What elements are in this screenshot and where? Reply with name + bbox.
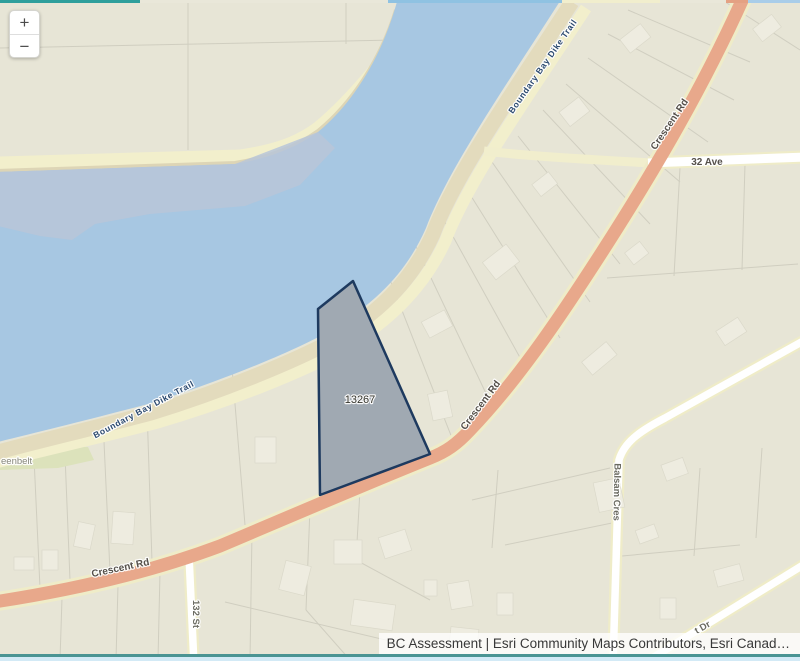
attribution-bar[interactable]: BC Assessment | Esri Community Maps Cont… xyxy=(379,633,800,654)
greenbelt-label: eenbelt xyxy=(1,456,33,467)
map-canvas[interactable]: 13267 Boundary Bay Dike Trail Boundary B… xyxy=(0,0,800,661)
parcel-id-label: 13267 xyxy=(345,394,376,406)
zoom-in-button[interactable]: + xyxy=(10,11,39,34)
road-label-balsam-cres: Balsam Cres xyxy=(610,463,622,521)
top-edge-artifact xyxy=(0,0,800,3)
road-label-132-st: 132 St xyxy=(190,600,201,629)
map-viewport[interactable]: 13267 Boundary Bay Dike Trail Boundary B… xyxy=(0,0,800,661)
bottom-frame-border xyxy=(0,654,800,661)
zoom-control: + − xyxy=(9,10,40,58)
road-32-ave xyxy=(648,157,800,163)
road-label-32-ave: 32 Ave xyxy=(691,157,723,168)
zoom-out-button[interactable]: − xyxy=(10,34,39,57)
